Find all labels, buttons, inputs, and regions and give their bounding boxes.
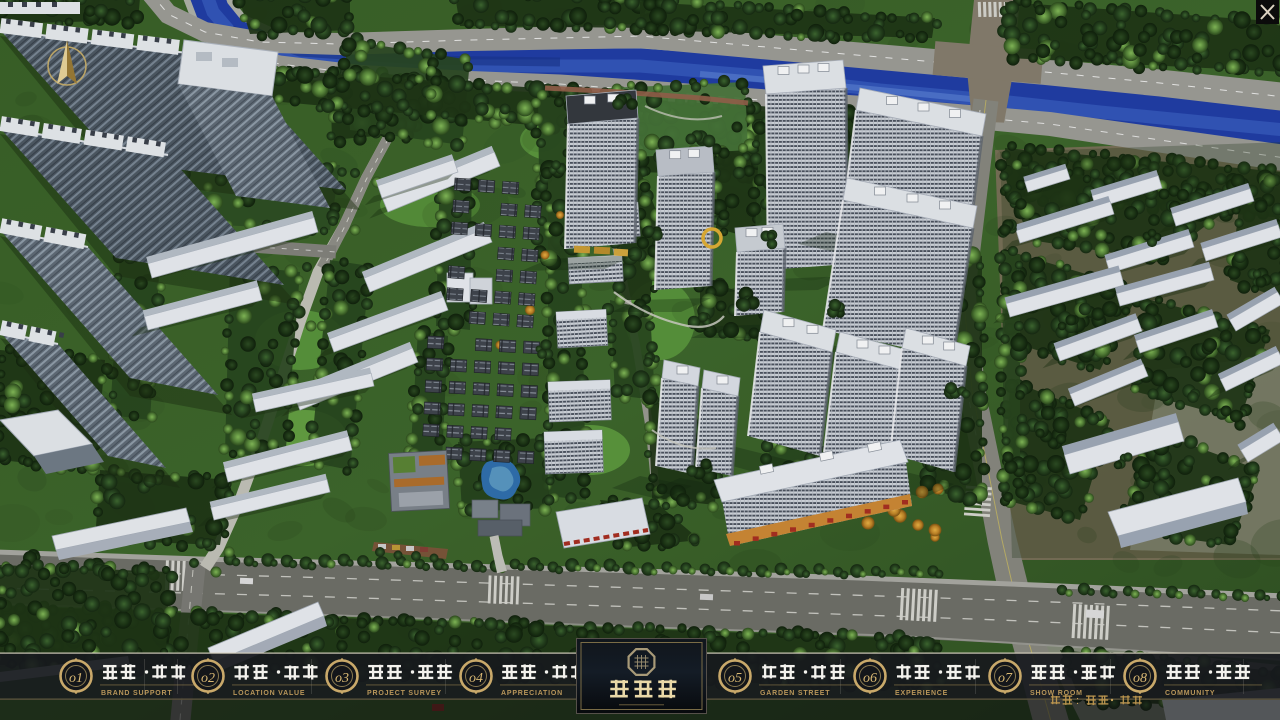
svg-text:LOCATION VALUE: LOCATION VALUE bbox=[233, 690, 305, 697]
svg-text:o8: o8 bbox=[1133, 671, 1147, 686]
svg-text:o4: o4 bbox=[469, 671, 483, 686]
svg-text:PROJECT SURVEY: PROJECT SURVEY bbox=[367, 690, 442, 697]
svg-text:o7: o7 bbox=[998, 671, 1013, 686]
svg-text:o5: o5 bbox=[728, 671, 742, 686]
svg-text:GARDEN STREET: GARDEN STREET bbox=[760, 690, 830, 697]
svg-text:o1: o1 bbox=[69, 671, 83, 686]
svg-text:o3: o3 bbox=[335, 671, 349, 686]
svg-text:o2: o2 bbox=[201, 671, 215, 686]
svg-text:COMMUNITY: COMMUNITY bbox=[1165, 690, 1215, 697]
svg-text:BRAND SUPPORT: BRAND SUPPORT bbox=[101, 690, 172, 697]
svg-text:APPRECIATION: APPRECIATION bbox=[501, 690, 563, 697]
svg-text:o6: o6 bbox=[863, 671, 877, 686]
svg-text:SHOW ROOM: SHOW ROOM bbox=[1030, 690, 1083, 697]
svg-text:EXPERIENCE: EXPERIENCE bbox=[895, 690, 948, 697]
svg-text::: : bbox=[1076, 695, 1079, 707]
